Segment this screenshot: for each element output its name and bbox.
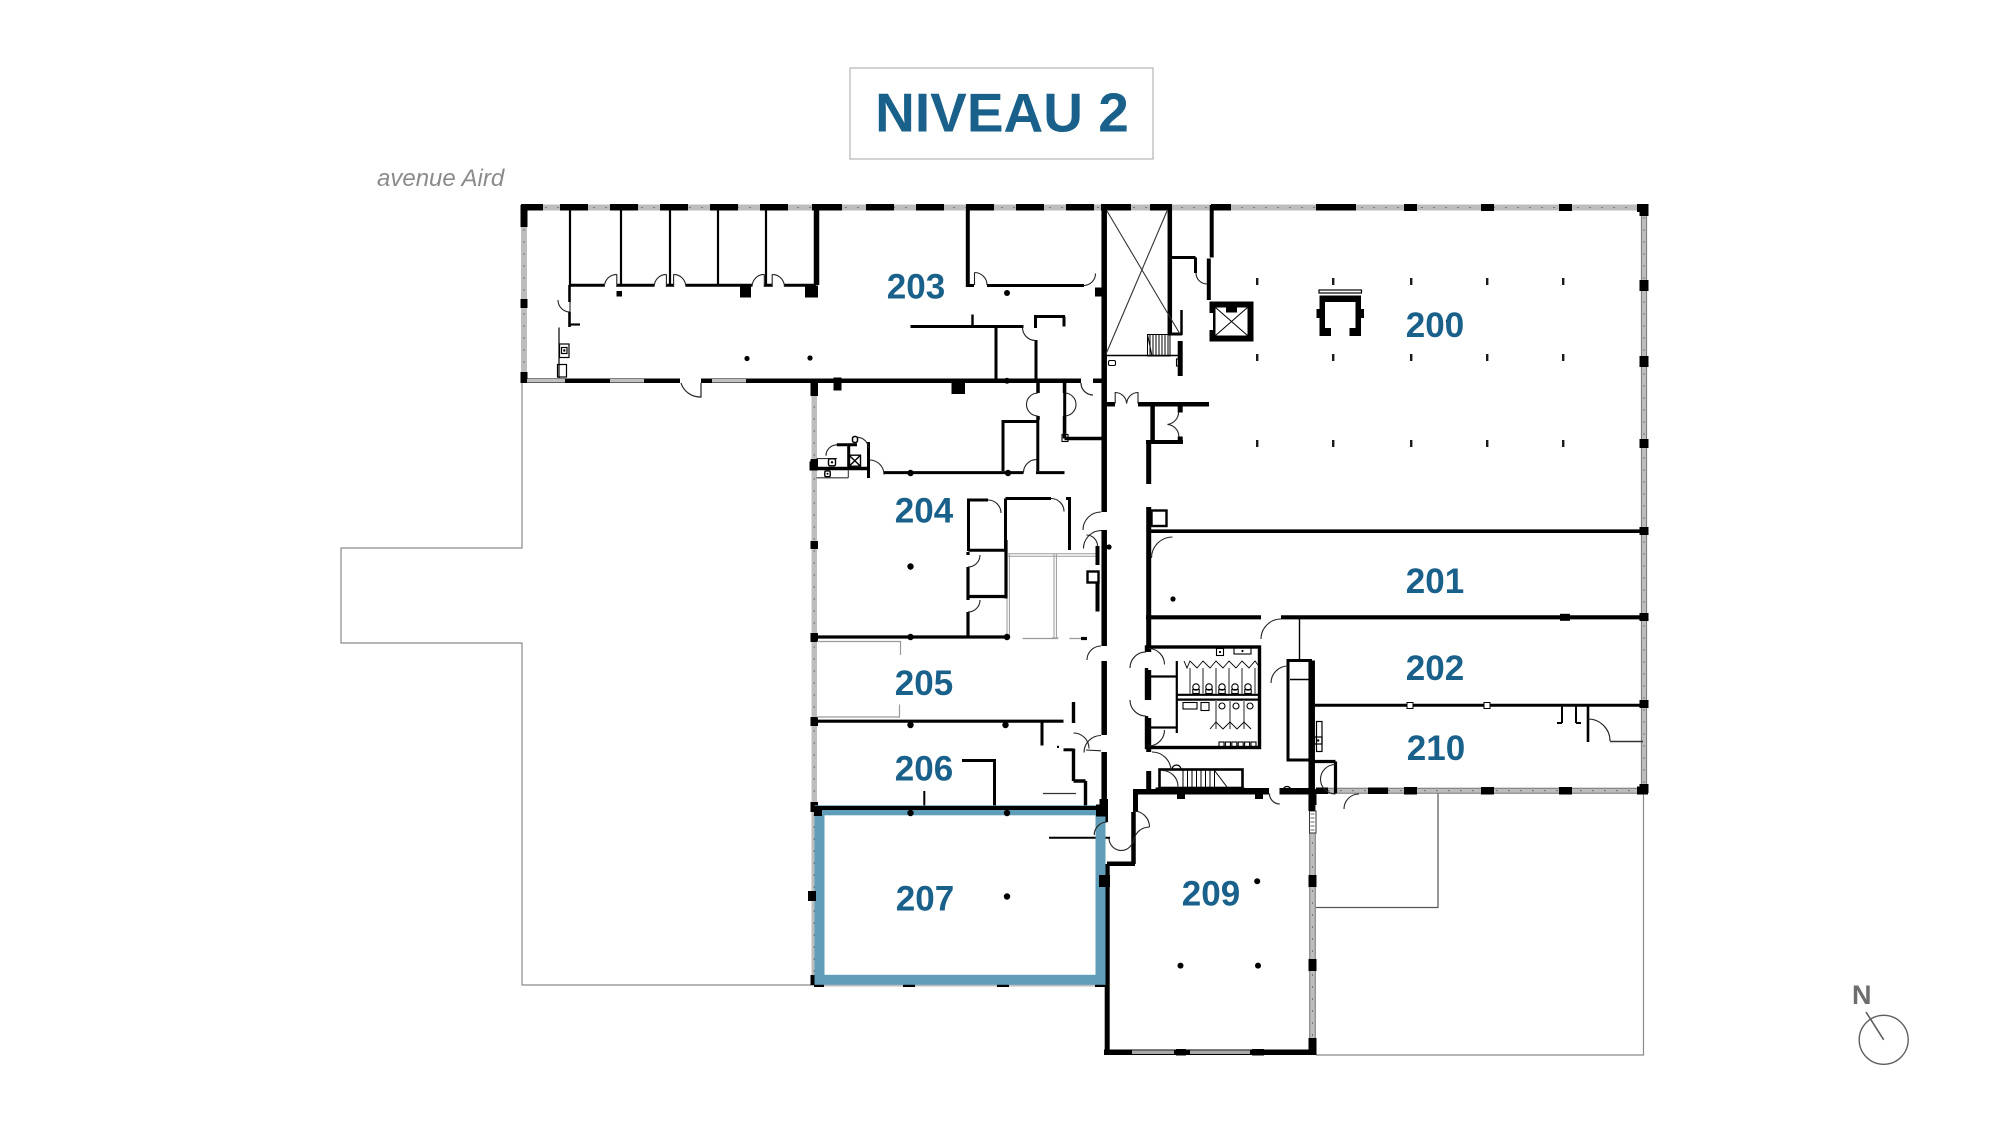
svg-text:205: 205: [895, 664, 953, 703]
svg-text:N: N: [1852, 980, 1872, 1010]
svg-text:210: 210: [1407, 729, 1465, 768]
svg-text:avenue Aird: avenue Aird: [377, 165, 505, 192]
svg-text:204: 204: [895, 492, 954, 531]
svg-text:202: 202: [1406, 649, 1464, 688]
svg-text:201: 201: [1406, 562, 1464, 601]
svg-text:207: 207: [896, 880, 954, 919]
svg-text:200: 200: [1406, 306, 1464, 345]
svg-text:209: 209: [1182, 875, 1240, 914]
svg-text:203: 203: [887, 268, 945, 307]
svg-text:206: 206: [895, 750, 953, 789]
svg-text:NIVEAU 2: NIVEAU 2: [875, 82, 1129, 144]
